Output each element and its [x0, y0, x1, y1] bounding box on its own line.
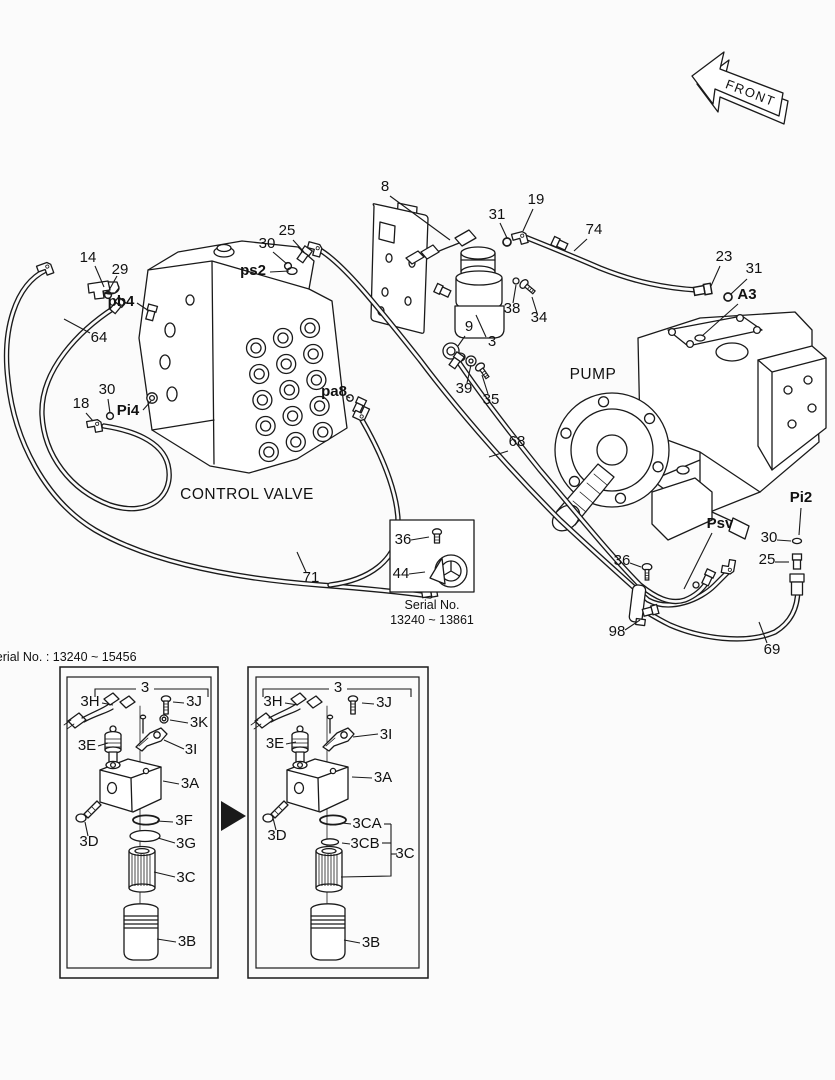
callout-31-a: 31: [489, 206, 506, 223]
callout-39: 39: [456, 380, 473, 397]
callout-69: 69: [764, 641, 781, 658]
port-pa8: pa8: [321, 383, 347, 400]
callout-64: 64: [91, 329, 108, 346]
callout-3k-left: 3K: [190, 714, 208, 731]
callout-19: 19: [528, 191, 545, 208]
inset-caption-line2: 13240 ~ 13861: [390, 613, 474, 627]
diagram-page: FRONT: [0, 0, 835, 1080]
callout-25-a: 25: [279, 222, 296, 239]
port-pi4: Pi4: [117, 402, 140, 419]
callout-3j-right: 3J: [376, 694, 392, 711]
group-3-left: 3: [141, 679, 149, 696]
inset-caption-line1: Serial No.: [405, 598, 460, 612]
callout-74: 74: [586, 221, 603, 238]
callout-30-b: 30: [99, 381, 116, 398]
callout-3i-right: 3I: [380, 726, 393, 743]
callout-34: 34: [531, 309, 548, 326]
callout-3d-right: 3D: [267, 827, 286, 844]
port-ps2: ps2: [240, 262, 266, 279]
port-psv: Psv: [707, 515, 734, 532]
port-pb4: pb4: [108, 293, 135, 310]
callout-3i-left: 3I: [185, 741, 198, 758]
callout-68: 68: [509, 433, 526, 450]
area-pump: PUMP: [570, 366, 617, 383]
callout-30-a: 30: [259, 235, 276, 252]
callout-29: 29: [112, 261, 129, 278]
callout-3b-right: 3B: [362, 934, 380, 951]
callout-3a-left: 3A: [181, 775, 199, 792]
callout-35: 35: [483, 391, 500, 408]
parts-diagram: FRONT: [0, 0, 835, 1080]
callout-23: 23: [716, 248, 733, 265]
callout-3g-left: 3G: [176, 835, 196, 852]
callout-14: 14: [80, 249, 97, 266]
callout-3e-right: 3E: [266, 735, 284, 752]
callout-3b-left: 3B: [178, 933, 196, 950]
callout-3cb-right: 3CB: [350, 835, 379, 852]
callout-3ca-right: 3CA: [352, 815, 381, 832]
callout-18: 18: [73, 395, 90, 412]
callout-3h-right: 3H: [263, 693, 282, 710]
callout-3h-left: 3H: [80, 693, 99, 710]
callout-71: 71: [303, 569, 320, 586]
callout-3: 3: [488, 333, 496, 350]
callout-3f-left: 3F: [175, 812, 193, 829]
callout-3j-left: 3J: [186, 693, 202, 710]
callout-3a-right: 3A: [374, 769, 392, 786]
callout-3d-left: 3D: [79, 833, 98, 850]
callout-9: 9: [465, 318, 473, 335]
area-control-valve: CONTROL VALVE: [180, 486, 314, 503]
port-a3: A3: [737, 286, 756, 303]
callout-38: 38: [504, 300, 521, 317]
callout-31-b: 31: [746, 260, 763, 277]
callout-25-b: 25: [759, 551, 776, 568]
callout-98: 98: [609, 623, 626, 640]
port-pi2: Pi2: [790, 489, 813, 506]
callout-36-b: 36: [395, 531, 412, 548]
callout-30-c: 30: [761, 529, 778, 546]
serial-range-left: Serial No. : 13240 ~ 15456: [0, 650, 137, 664]
callout-3e-left: 3E: [78, 737, 96, 754]
callout-3c-right: 3C: [395, 845, 414, 862]
callout-8: 8: [381, 178, 389, 195]
callout-3c-left: 3C: [176, 869, 195, 886]
group-3-right: 3: [334, 679, 342, 696]
callout-36-a: 36: [614, 552, 631, 569]
callout-44: 44: [393, 565, 410, 582]
